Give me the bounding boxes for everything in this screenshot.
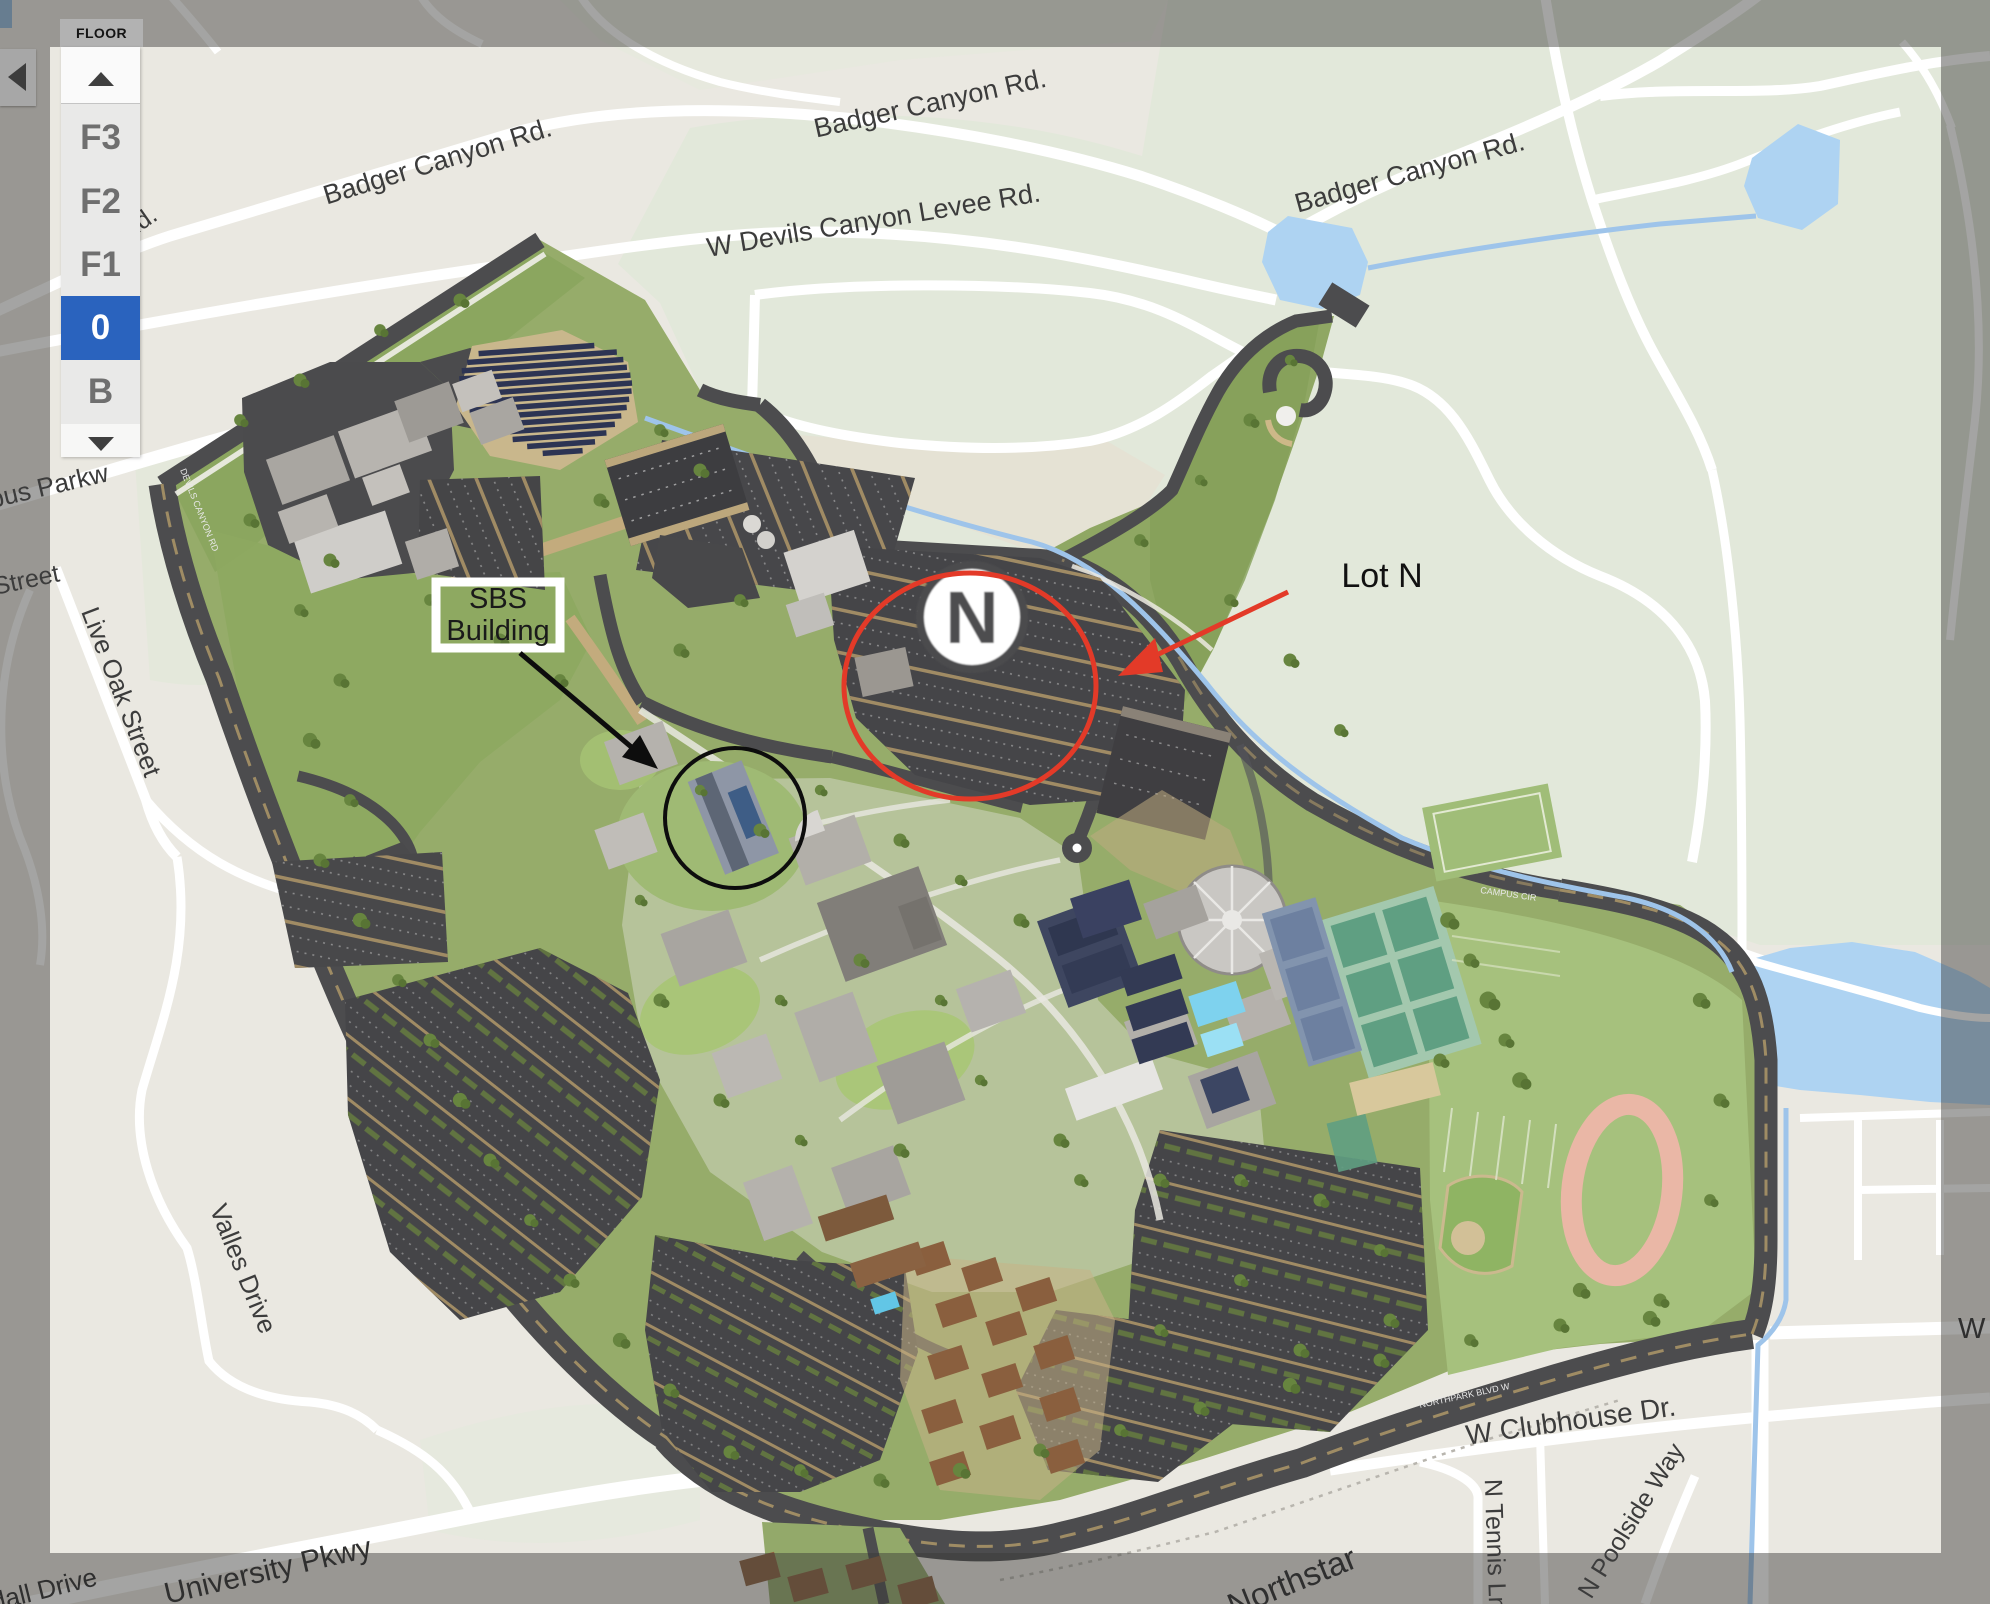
svg-text:Lot N: Lot N bbox=[1341, 557, 1422, 595]
svg-text:N Tennis Ln: N Tennis Ln bbox=[1479, 1478, 1512, 1604]
svg-text:Building: Building bbox=[446, 615, 549, 647]
svg-text:SBS: SBS bbox=[469, 583, 527, 615]
svg-text:W N: W N bbox=[1958, 1313, 1990, 1345]
svg-text:N: N bbox=[945, 576, 998, 659]
